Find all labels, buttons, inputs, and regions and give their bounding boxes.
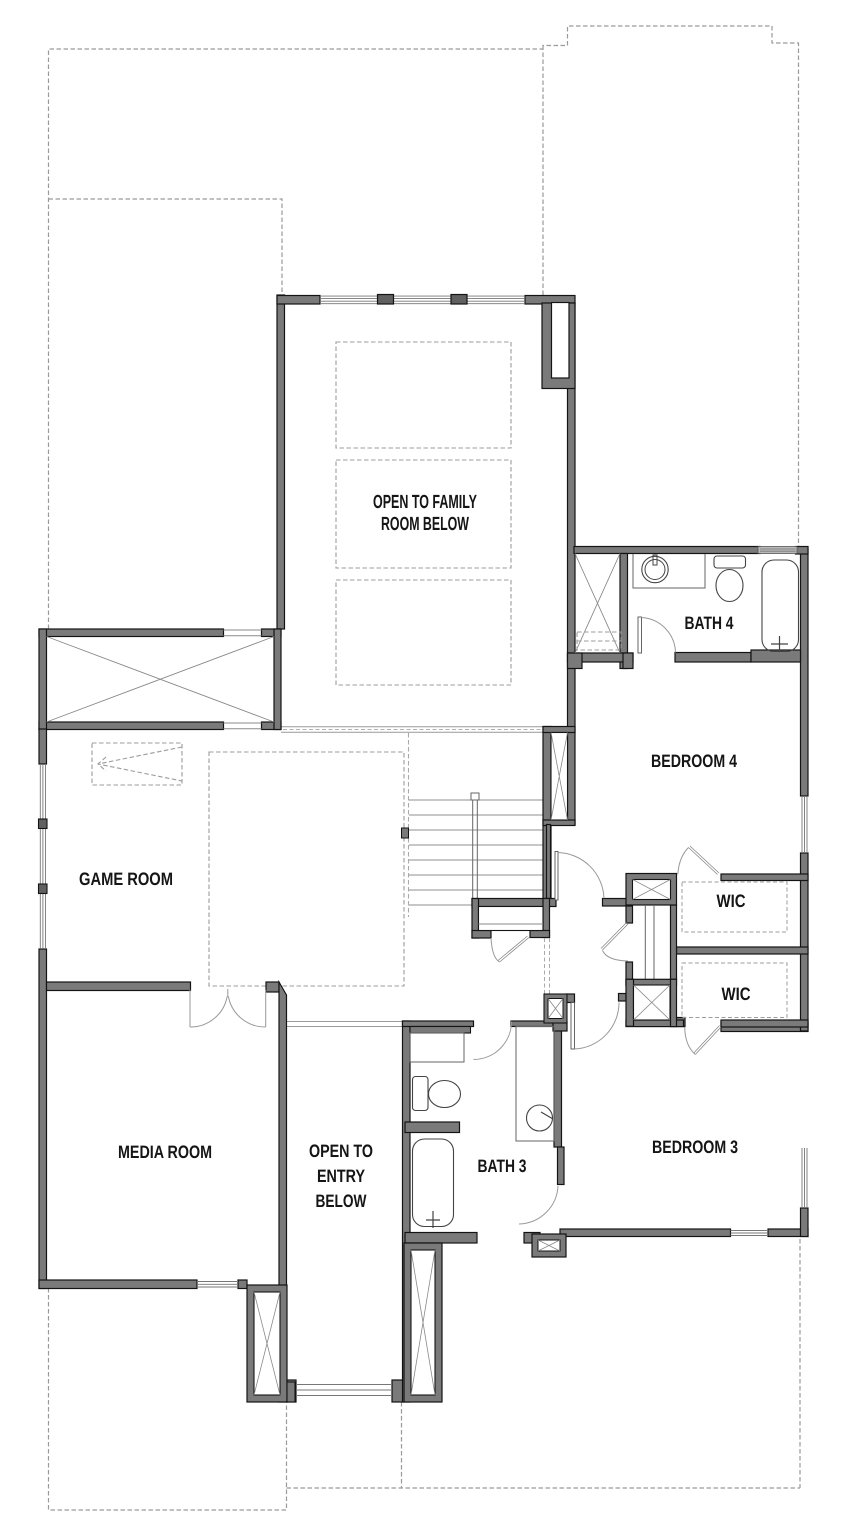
svg-text:ROOM BELOW: ROOM BELOW: [381, 514, 469, 535]
svg-text:BATH 4: BATH 4: [685, 613, 734, 633]
svg-text:BELOW: BELOW: [316, 1191, 367, 1211]
svg-text:BEDROOM 3: BEDROOM 3: [652, 1137, 738, 1157]
svg-text:ENTRY: ENTRY: [317, 1166, 365, 1186]
svg-text:GAME ROOM: GAME ROOM: [79, 869, 173, 889]
svg-text:OPEN TO: OPEN TO: [309, 1141, 373, 1161]
svg-text:WIC: WIC: [722, 984, 751, 1004]
svg-text:MEDIA ROOM: MEDIA ROOM: [118, 1142, 212, 1162]
svg-text:BEDROOM 4: BEDROOM 4: [651, 751, 737, 771]
svg-text:BATH 3: BATH 3: [478, 1156, 527, 1176]
svg-text:WIC: WIC: [717, 891, 746, 911]
svg-text:OPEN TO FAMILY: OPEN TO FAMILY: [373, 492, 477, 513]
